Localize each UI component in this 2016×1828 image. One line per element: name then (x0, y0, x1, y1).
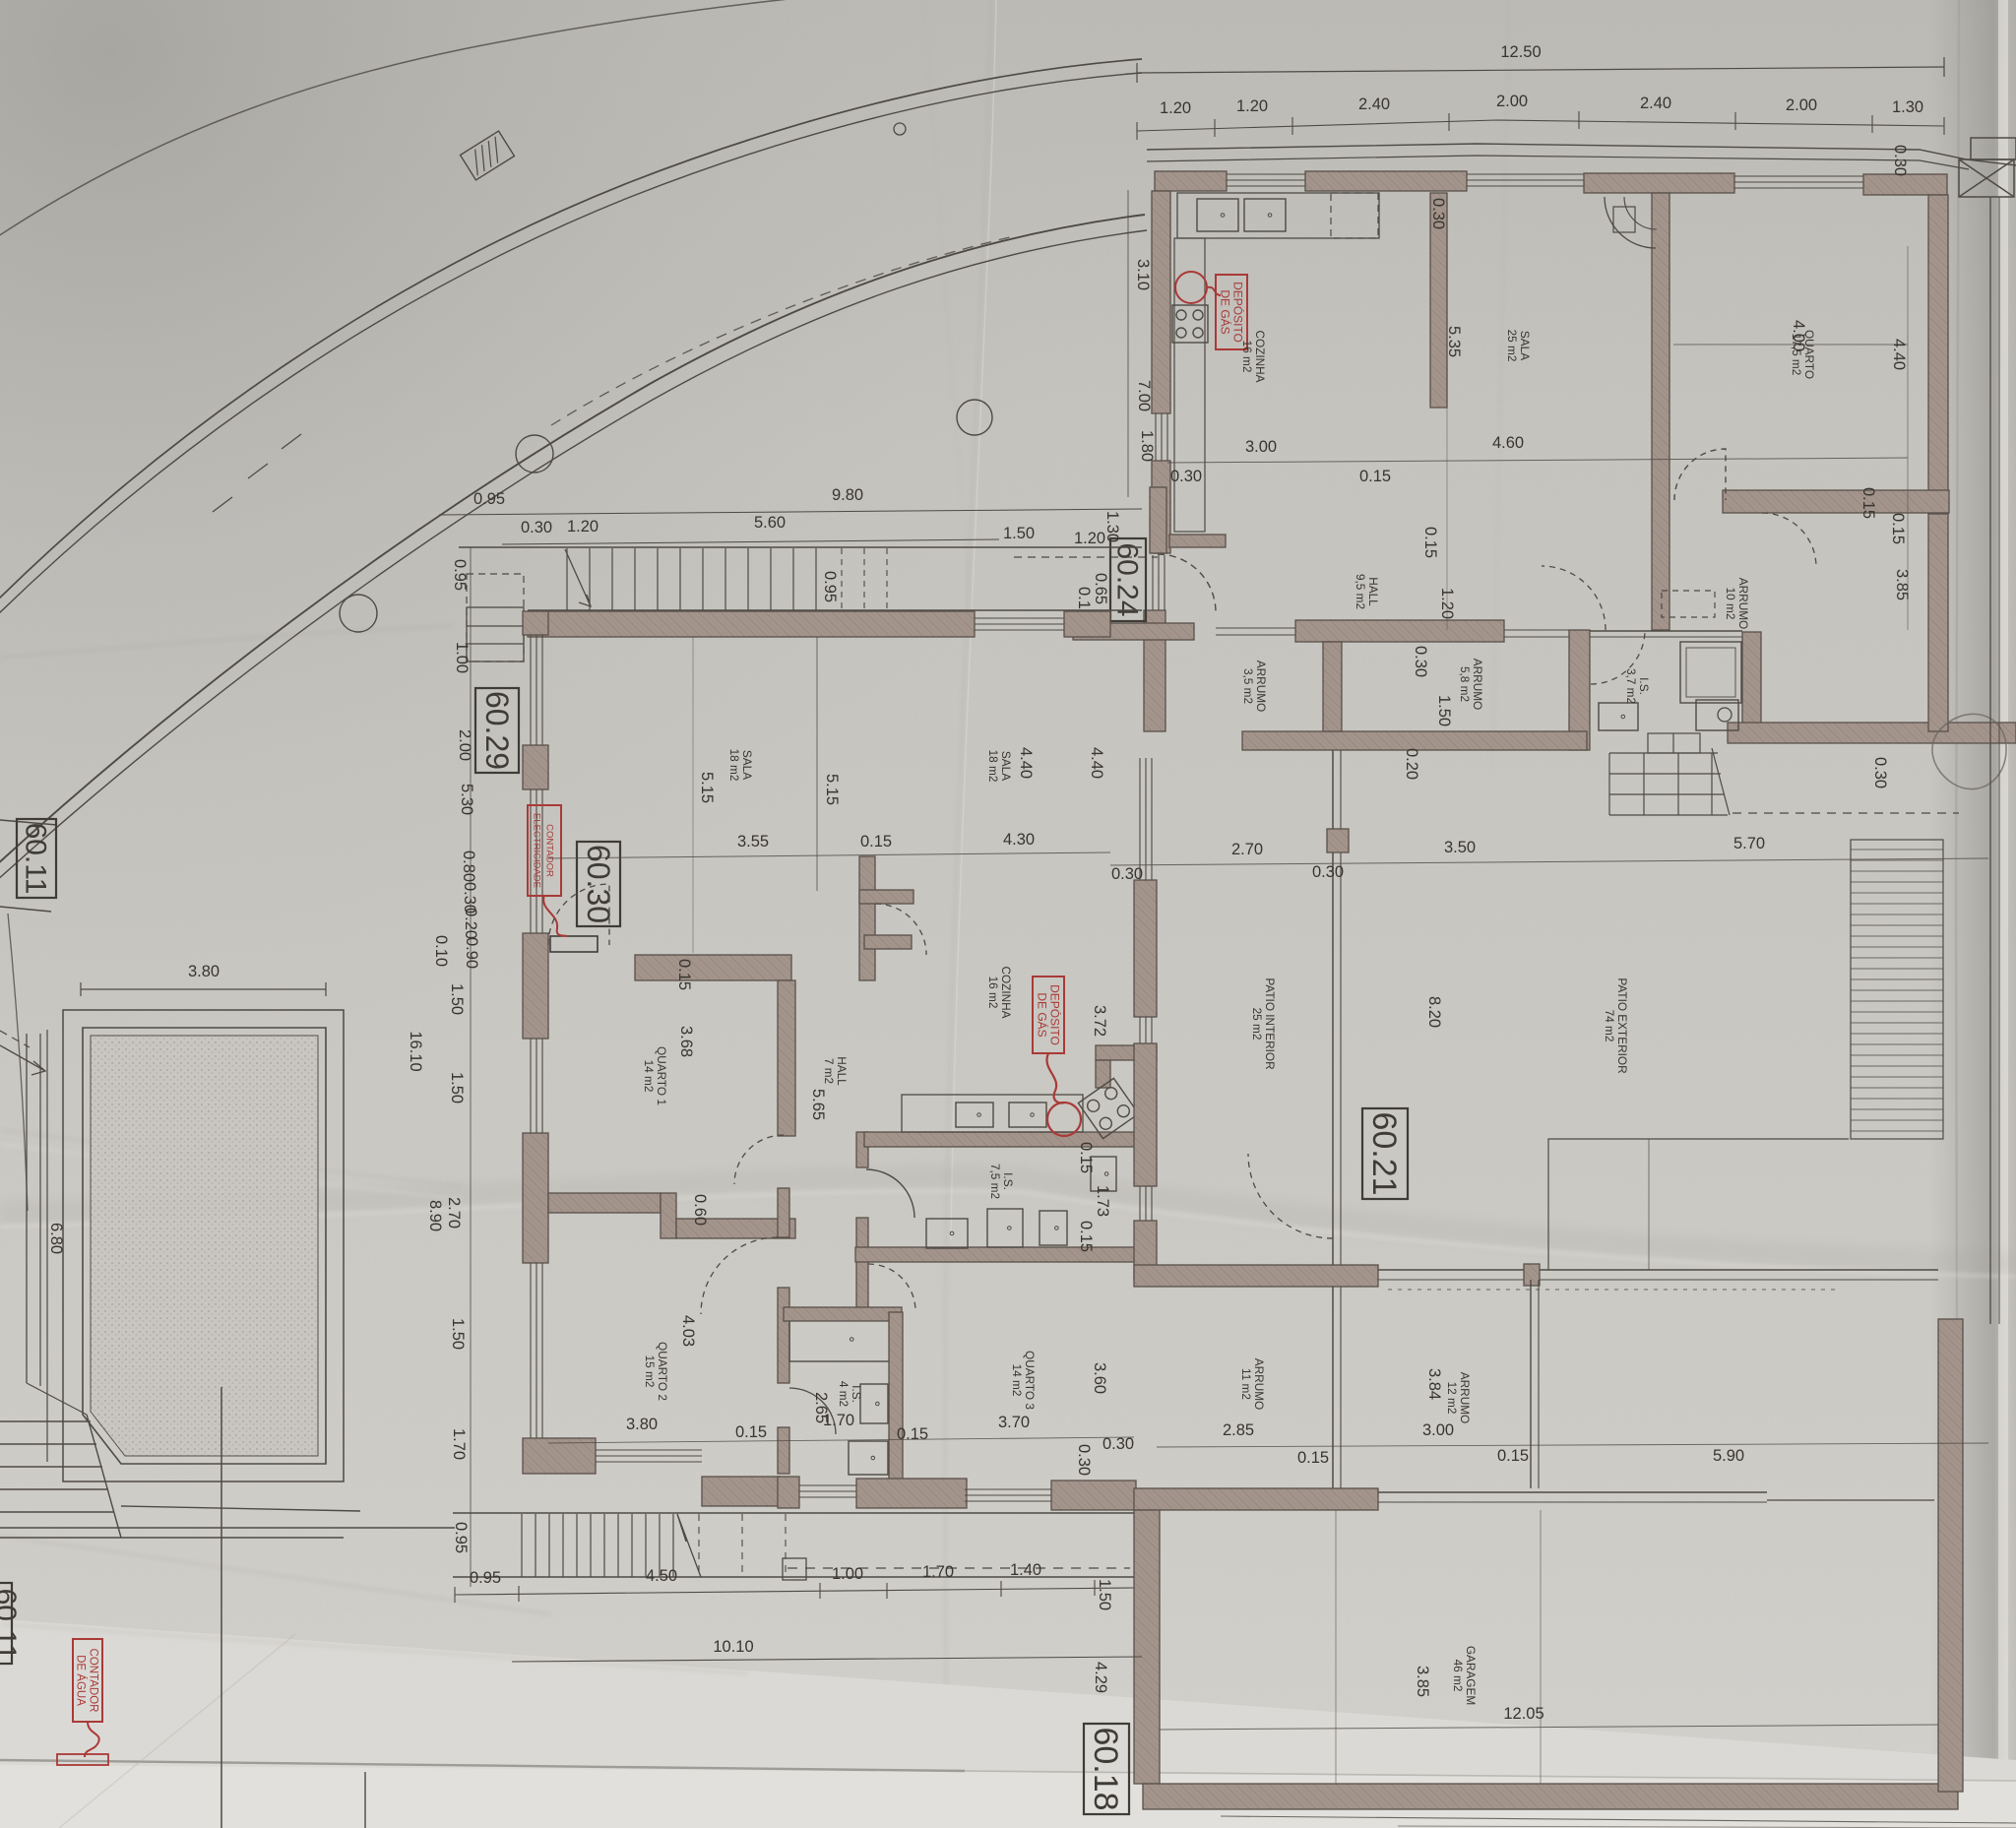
svg-text:1.20: 1.20 (1074, 530, 1105, 547)
svg-text:4.00: 4.00 (1790, 320, 1807, 351)
svg-text:8.20: 8.20 (1425, 996, 1443, 1028)
svg-text:0.30: 0.30 (1111, 865, 1143, 883)
svg-text:60.29: 60.29 (479, 691, 515, 770)
svg-text:DEPÓSITODE GÁS: DEPÓSITODE GÁS (1219, 282, 1246, 343)
svg-text:3.10: 3.10 (1134, 259, 1152, 290)
svg-text:0.30: 0.30 (1429, 198, 1447, 229)
svg-text:0.30: 0.30 (1871, 757, 1889, 788)
svg-text:0.15: 0.15 (1359, 468, 1391, 485)
svg-text:1.50: 1.50 (448, 1072, 466, 1103)
svg-text:3.70: 3.70 (998, 1414, 1030, 1431)
svg-text:SALA18 m2: SALA18 m2 (727, 749, 754, 782)
svg-text:5.15: 5.15 (823, 774, 841, 805)
svg-text:0.20: 0.20 (462, 908, 479, 939)
svg-text:0.30: 0.30 (1075, 1444, 1093, 1476)
svg-text:0.15: 0.15 (1421, 527, 1439, 558)
svg-text:3.72: 3.72 (1091, 1005, 1108, 1037)
svg-text:0.15: 0.15 (1859, 487, 1877, 519)
svg-text:0.15: 0.15 (675, 959, 693, 990)
svg-text:0.90: 0.90 (463, 937, 480, 969)
svg-text:0.95: 0.95 (452, 1522, 470, 1553)
svg-text:5.70: 5.70 (1733, 835, 1765, 852)
svg-text:0.15: 0.15 (1077, 1221, 1095, 1252)
svg-text:2.85: 2.85 (1223, 1421, 1254, 1439)
svg-text:1.00: 1.00 (453, 642, 471, 673)
svg-text:0.95: 0.95 (451, 559, 469, 591)
svg-text:5.65: 5.65 (809, 1089, 827, 1120)
svg-text:3.55: 3.55 (737, 833, 769, 851)
svg-text:3.00: 3.00 (1245, 438, 1277, 456)
svg-text:0.60: 0.60 (691, 1194, 709, 1226)
svg-text:0.15: 0.15 (897, 1425, 928, 1443)
svg-text:3.85: 3.85 (1414, 1666, 1431, 1697)
svg-text:60.18: 60.18 (1087, 1727, 1124, 1810)
svg-text:DEPÓSITODE GÁS: DEPÓSITODE GÁS (1036, 984, 1063, 1045)
svg-text:0.20: 0.20 (1403, 748, 1420, 780)
svg-text:3.50: 3.50 (1444, 839, 1476, 856)
svg-text:0.65: 0.65 (1092, 573, 1109, 604)
svg-text:2.40: 2.40 (1640, 95, 1671, 112)
svg-text:3.60: 3.60 (1091, 1362, 1108, 1394)
svg-text:1.30: 1.30 (1892, 98, 1923, 116)
svg-text:1.20: 1.20 (1438, 588, 1456, 619)
svg-text:1.73: 1.73 (1094, 1185, 1111, 1217)
svg-text:0.15: 0.15 (1297, 1449, 1329, 1467)
svg-text:1.70: 1.70 (450, 1428, 468, 1460)
svg-text:2.00: 2.00 (1496, 93, 1528, 110)
svg-text:3.84: 3.84 (1425, 1368, 1443, 1400)
svg-text:4.40: 4.40 (1017, 747, 1035, 779)
svg-text:60.21: 60.21 (1365, 1111, 1403, 1195)
svg-text:12.50: 12.50 (1500, 43, 1541, 61)
svg-text:1.00: 1.00 (832, 1565, 863, 1583)
svg-text:16.10: 16.10 (407, 1031, 424, 1071)
svg-text:CONTADORDE ÁGUA: CONTADORDE ÁGUA (75, 1649, 99, 1713)
svg-text:1.40: 1.40 (1010, 1561, 1041, 1579)
svg-text:0.10: 0.10 (432, 935, 450, 967)
svg-text:2.00: 2.00 (456, 729, 473, 761)
svg-text:1.70: 1.70 (922, 1563, 954, 1581)
svg-text:4.03: 4.03 (679, 1315, 697, 1347)
svg-text:0.30: 0.30 (1312, 863, 1344, 881)
svg-text:1.20: 1.20 (1160, 99, 1191, 117)
svg-text:4.40: 4.40 (1890, 339, 1908, 370)
svg-text:1.70: 1.70 (823, 1412, 854, 1429)
svg-text:0.15: 0.15 (860, 833, 892, 851)
svg-text:SALA25 m2: SALA25 m2 (1505, 330, 1532, 362)
svg-text:0.15: 0.15 (735, 1423, 767, 1441)
svg-text:2.00: 2.00 (1786, 96, 1817, 114)
svg-text:2.70: 2.70 (445, 1197, 463, 1229)
svg-text:1.50: 1.50 (449, 1318, 467, 1350)
svg-text:2.70: 2.70 (1231, 841, 1263, 858)
svg-text:1.50: 1.50 (1096, 1579, 1113, 1610)
svg-text:SALA18 m2: SALA18 m2 (986, 750, 1013, 783)
svg-text:0.80: 0.80 (460, 851, 477, 882)
svg-text:5.90: 5.90 (1713, 1447, 1744, 1465)
svg-text:1.20: 1.20 (567, 518, 598, 536)
svg-text:HALL9,5 m2: HALL9,5 m2 (1354, 574, 1380, 609)
svg-text:4.50: 4.50 (646, 1567, 677, 1585)
svg-text:0.95: 0.95 (821, 571, 839, 602)
svg-text:9.80: 9.80 (832, 486, 863, 504)
svg-text:3.68: 3.68 (677, 1026, 695, 1057)
svg-text:5.60: 5.60 (754, 514, 786, 532)
svg-text:3.00: 3.00 (1422, 1421, 1454, 1439)
svg-text:0.15: 0.15 (1497, 1447, 1529, 1465)
svg-text:3.80: 3.80 (188, 963, 220, 980)
svg-text:1.80: 1.80 (1138, 430, 1156, 462)
svg-text:8.90: 8.90 (426, 1200, 444, 1231)
svg-text:1.30: 1.30 (1103, 511, 1121, 542)
svg-text:2.40: 2.40 (1358, 95, 1390, 113)
svg-text:1.50: 1.50 (1003, 525, 1035, 542)
svg-text:1.20: 1.20 (1236, 97, 1268, 115)
svg-text:6.80: 6.80 (47, 1223, 65, 1254)
svg-text:0.30: 0.30 (1891, 145, 1909, 176)
svg-text:4.60: 4.60 (1492, 434, 1524, 452)
svg-text:0.15: 0.15 (1889, 513, 1907, 544)
svg-text:60.24: 60.24 (1111, 542, 1144, 616)
svg-text:1.50: 1.50 (448, 983, 466, 1015)
svg-text:5.30: 5.30 (458, 784, 475, 815)
svg-text:4.30: 4.30 (1003, 831, 1035, 849)
svg-text:10.10: 10.10 (713, 1638, 753, 1656)
svg-text:7.00: 7.00 (1135, 380, 1153, 411)
svg-text:4.40: 4.40 (1088, 747, 1105, 779)
svg-text:60.11: 60.11 (0, 1589, 22, 1661)
svg-text:0.30: 0.30 (1412, 646, 1429, 677)
svg-text:0.95: 0.95 (473, 490, 505, 508)
svg-text:60.11: 60.11 (20, 823, 52, 895)
svg-text:4.29: 4.29 (1092, 1662, 1109, 1693)
svg-text:5.35: 5.35 (1445, 326, 1463, 357)
svg-text:5.15: 5.15 (698, 772, 716, 803)
svg-text:1.50: 1.50 (1435, 695, 1453, 726)
svg-text:0.95: 0.95 (470, 1569, 501, 1587)
svg-text:0.15: 0.15 (1077, 1142, 1095, 1173)
svg-text:HALL7 m2: HALL7 m2 (822, 1056, 849, 1086)
svg-text:3.85: 3.85 (1893, 569, 1911, 600)
svg-text:3.80: 3.80 (626, 1416, 658, 1433)
svg-text:0.30: 0.30 (521, 519, 552, 536)
svg-text:60.30: 60.30 (581, 845, 616, 923)
svg-text:12.05: 12.05 (1503, 1705, 1543, 1723)
svg-text:0.30: 0.30 (1170, 468, 1202, 485)
